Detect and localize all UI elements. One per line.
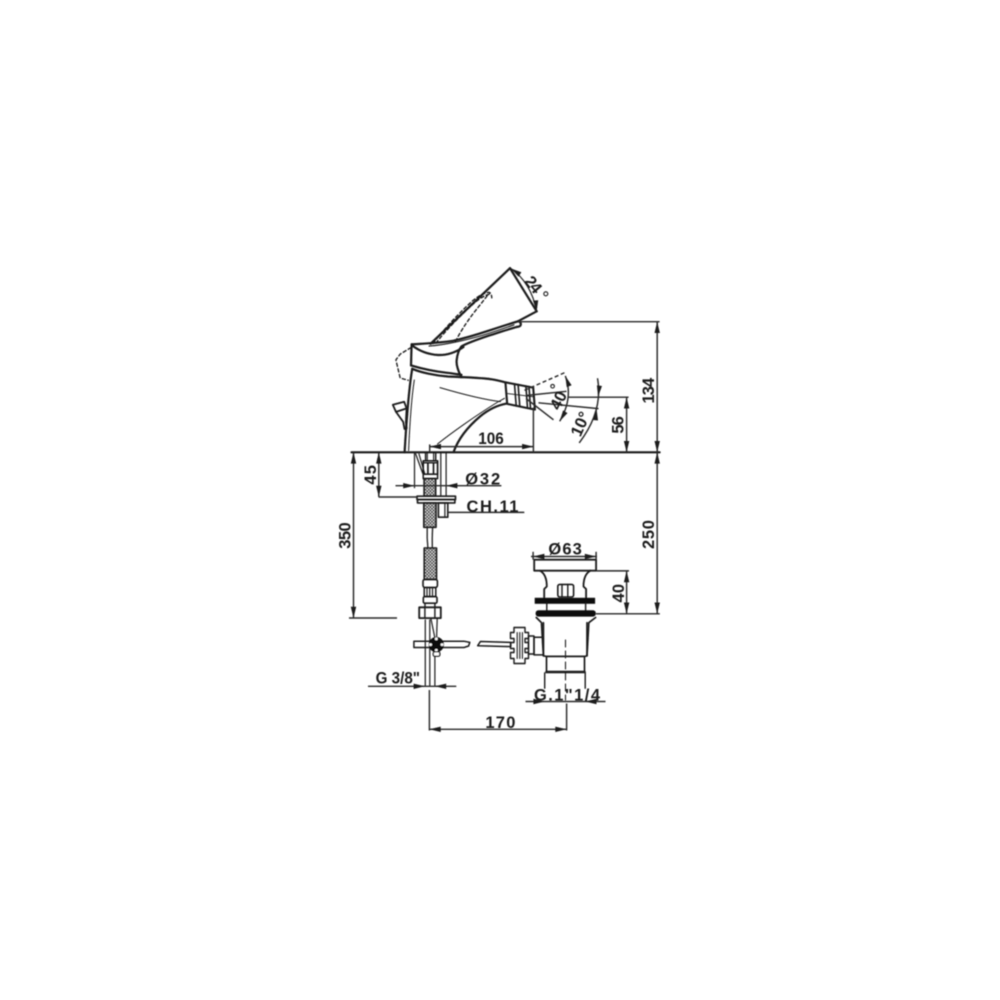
svg-text:Ø63: Ø63: [548, 541, 581, 559]
svg-text:250: 250: [640, 520, 658, 549]
svg-text:45: 45: [362, 465, 380, 485]
svg-text:G 3/8": G 3/8": [376, 670, 420, 688]
svg-text:G.1"1/4: G.1"1/4: [534, 686, 601, 704]
svg-text:40: 40: [610, 584, 628, 603]
svg-text:Ø32: Ø32: [465, 471, 500, 489]
svg-text:134: 134: [640, 377, 658, 404]
svg-text:106: 106: [478, 430, 504, 448]
svg-text:56: 56: [609, 416, 627, 433]
svg-text:24: 24: [521, 273, 546, 298]
svg-text:CH.11: CH.11: [467, 498, 519, 516]
svg-text:350: 350: [336, 522, 354, 548]
svg-text:40: 40: [547, 389, 571, 413]
svg-text:10°: 10°: [568, 409, 595, 439]
svg-text:170: 170: [485, 714, 515, 732]
